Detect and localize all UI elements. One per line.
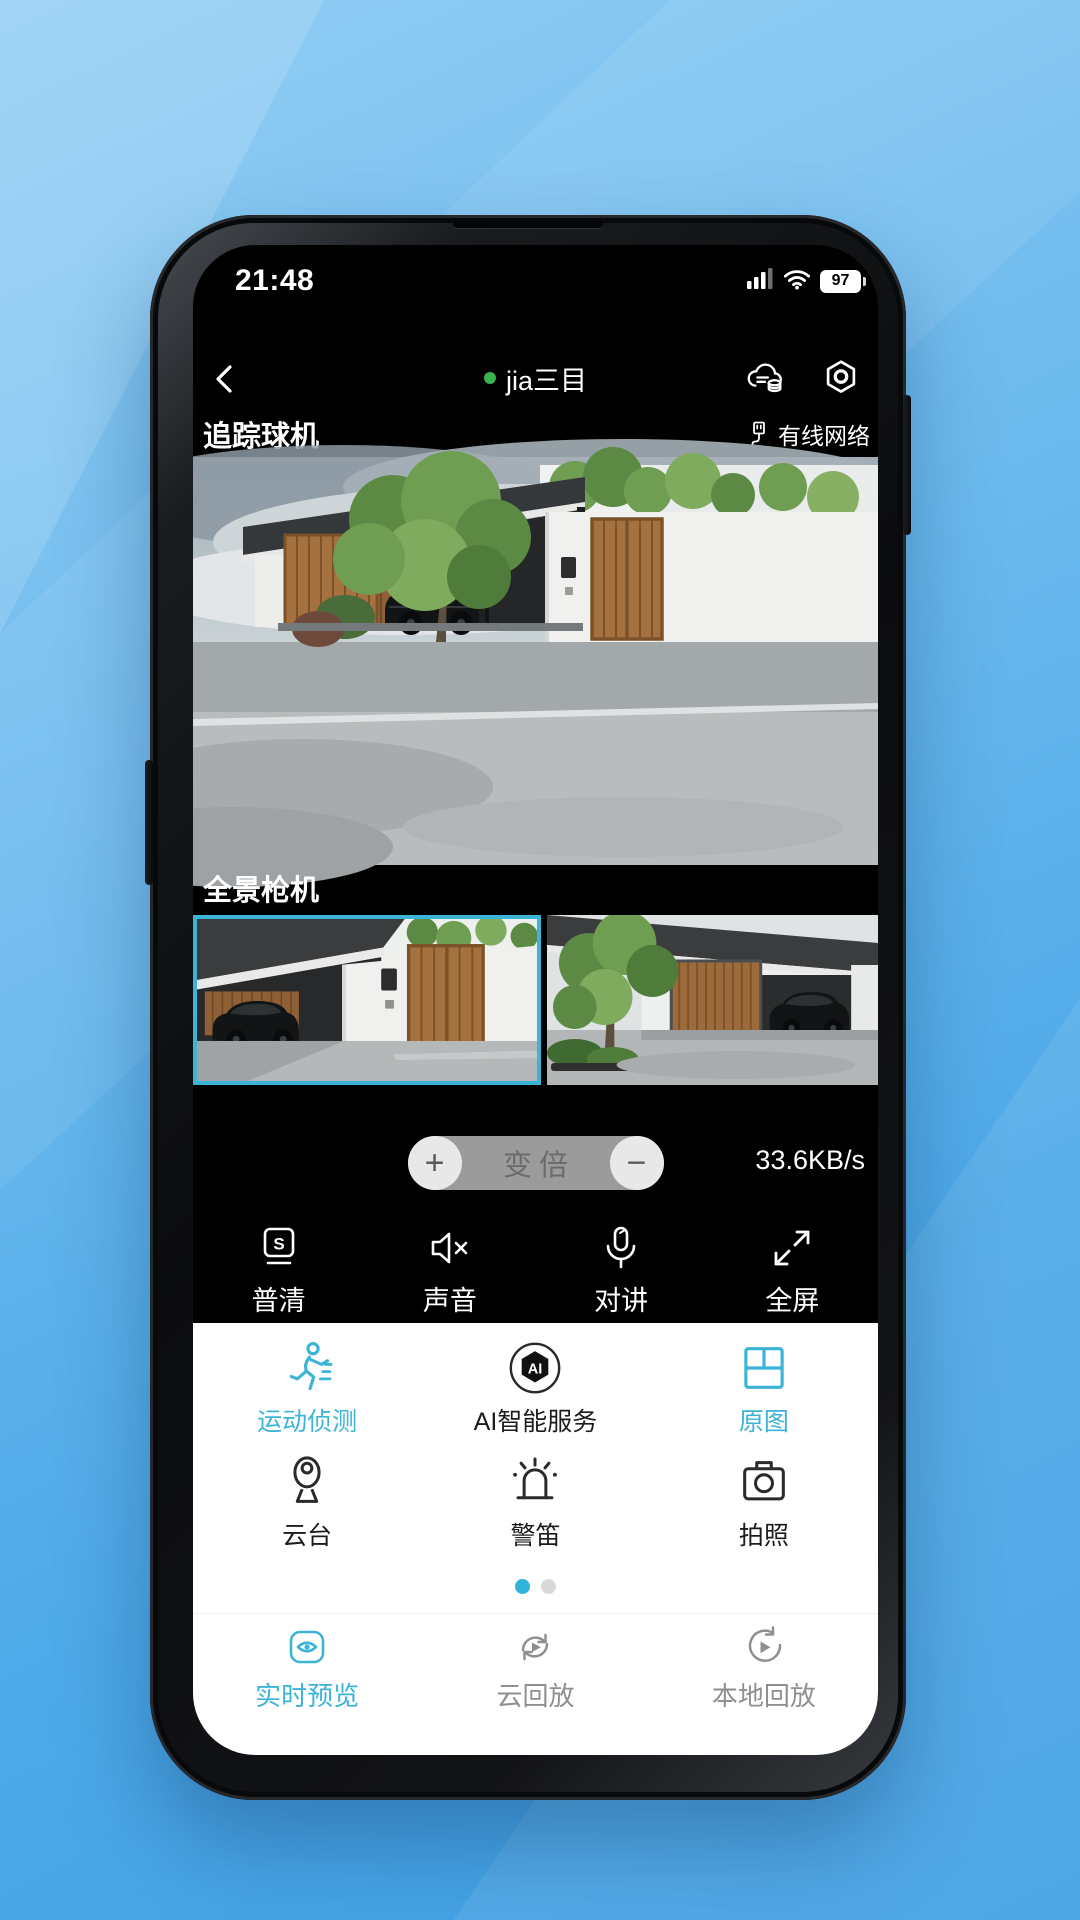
tab-bar-divider — [193, 1613, 878, 1614]
wired-network-icon — [749, 421, 769, 447]
bitrate-indicator: 33.6KB/s — [755, 1145, 865, 1176]
ptz-button[interactable]: 云台 — [193, 1453, 421, 1552]
zoom-control: + 变倍 − — [408, 1136, 664, 1190]
app-screen: 21:48 — [193, 245, 878, 1755]
cloud-playback-icon — [511, 1623, 559, 1671]
svg-text:S: S — [273, 1235, 284, 1254]
tracking-camera-feed[interactable] — [193, 457, 878, 865]
ai-services-icon: AI — [506, 1339, 564, 1397]
nav-bar: jia三目 — [193, 345, 878, 411]
function-panel: 运动侦测 AI AI智能服务 — [193, 1323, 878, 1755]
phone-side-button-left — [145, 760, 153, 885]
camera-scene-main — [193, 457, 878, 865]
ptz-camera-icon — [278, 1453, 336, 1511]
tab-local-playback[interactable]: 本地回放 — [650, 1615, 878, 1725]
panorama-thumbnail-selected[interactable] — [193, 915, 541, 1085]
cellular-signal-icon — [747, 268, 774, 294]
panorama-thumbnail[interactable] — [547, 915, 878, 1085]
siren-button[interactable]: 警笛 — [421, 1453, 649, 1552]
ai-services-button[interactable]: AI AI智能服务 — [421, 1339, 649, 1438]
speaker-muted-icon — [426, 1224, 474, 1272]
tab-cloud-playback[interactable]: 云回放 — [421, 1615, 649, 1725]
device-name: jia三目 — [506, 359, 587, 398]
intercom-button[interactable]: 对讲 — [536, 1213, 707, 1323]
panorama-camera-label: 全景枪机 — [203, 867, 319, 909]
fullscreen-icon — [768, 1224, 816, 1272]
bottom-tab-bar: 实时预览 云回放 — [193, 1615, 878, 1725]
phone-side-button-right — [903, 395, 911, 535]
fullscreen-button[interactable]: 全屏 — [707, 1213, 878, 1323]
page-background: 21:48 — [0, 0, 1080, 1920]
online-status-dot — [484, 372, 496, 384]
snapshot-camera-icon — [735, 1453, 793, 1511]
cloud-storage-button[interactable] — [744, 357, 786, 399]
zoom-out-button[interactable]: − — [610, 1136, 664, 1190]
panorama-thumbnails — [193, 915, 878, 1085]
svg-text:AI: AI — [528, 1361, 543, 1377]
clock: 21:48 — [235, 264, 314, 298]
live-preview-eye-icon — [283, 1623, 331, 1671]
wifi-icon — [783, 268, 811, 294]
motion-detect-button[interactable]: 运动侦测 — [193, 1339, 421, 1438]
battery-indicator: 97 — [820, 270, 861, 293]
microphone-icon — [597, 1224, 645, 1272]
tab-live-preview[interactable]: 实时预览 — [193, 1615, 421, 1725]
original-image-button[interactable]: 原图 — [650, 1339, 878, 1438]
earpiece-speaker — [453, 221, 603, 228]
status-bar: 21:48 — [193, 259, 878, 303]
motion-detect-icon — [278, 1339, 336, 1397]
sd-quality-icon: S — [255, 1224, 303, 1272]
quality-button[interactable]: S 普清 — [193, 1213, 364, 1323]
camera-scene-thumb-right — [547, 915, 878, 1085]
stream-toolbar: S 普清 声音 — [193, 1213, 878, 1323]
local-playback-icon — [740, 1623, 788, 1671]
phone-frame: 21:48 — [150, 215, 906, 1800]
camera-scene-thumb-left — [197, 919, 537, 1081]
page-dot-active[interactable] — [515, 1579, 530, 1594]
page-dot[interactable] — [541, 1579, 556, 1594]
snapshot-button[interactable]: 拍照 — [650, 1453, 878, 1552]
sound-button[interactable]: 声音 — [364, 1213, 535, 1323]
zoom-control-row: + 变倍 − 33.6KB/s — [193, 1133, 878, 1193]
page-indicator — [193, 1579, 878, 1594]
siren-icon — [506, 1453, 564, 1511]
original-image-icon — [735, 1339, 793, 1397]
settings-button[interactable] — [820, 357, 862, 399]
